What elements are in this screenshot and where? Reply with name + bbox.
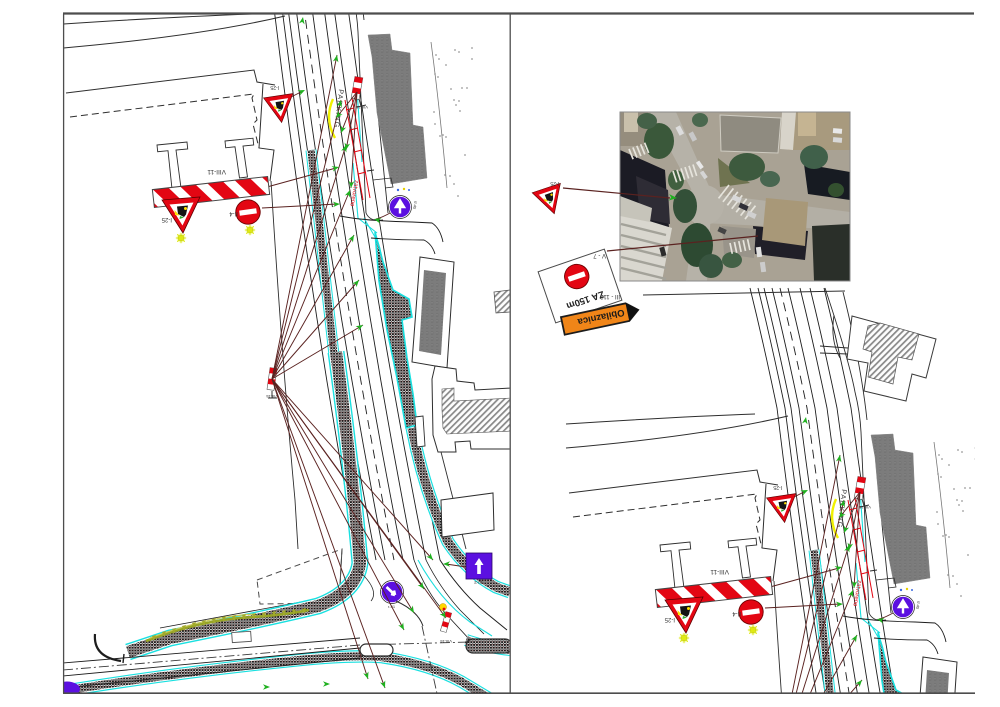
svg-text:I-25: I-25 xyxy=(550,180,559,186)
svg-text:V - 7: V - 7 xyxy=(593,252,606,258)
svg-text:III - 112: III - 112 xyxy=(599,293,620,299)
